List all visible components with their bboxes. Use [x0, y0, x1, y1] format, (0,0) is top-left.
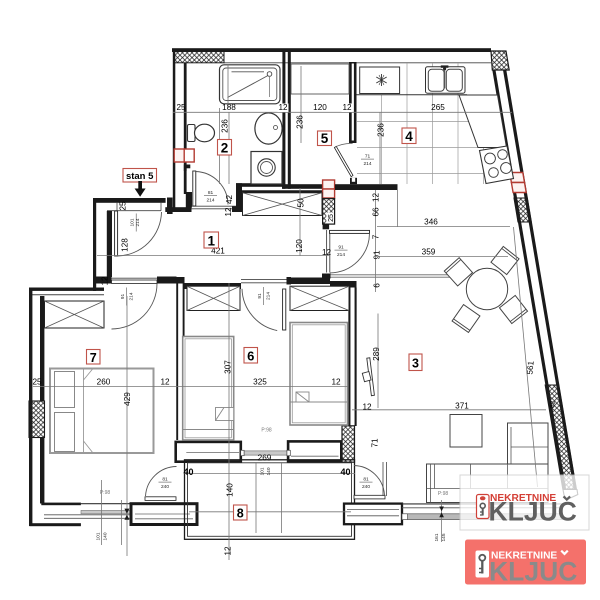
svg-text:12: 12	[342, 103, 352, 112]
svg-text:71: 71	[371, 438, 380, 448]
svg-text:5: 5	[321, 131, 329, 146]
svg-text:P:98: P:98	[261, 428, 272, 434]
svg-text:371: 371	[455, 402, 469, 411]
svg-text:429: 429	[123, 392, 132, 406]
svg-text:236: 236	[221, 119, 230, 133]
svg-text:8: 8	[237, 507, 244, 521]
svg-text:4: 4	[405, 129, 413, 144]
svg-text:50: 50	[297, 198, 306, 208]
svg-text:214: 214	[135, 218, 141, 226]
svg-text:71: 71	[365, 154, 371, 160]
svg-text:12: 12	[160, 378, 170, 387]
svg-text:91: 91	[257, 293, 263, 299]
svg-text:214: 214	[337, 252, 345, 258]
svg-text:214: 214	[206, 198, 214, 204]
svg-text:91: 91	[120, 294, 126, 300]
svg-text:128: 128	[121, 238, 130, 252]
svg-text:42: 42	[225, 195, 234, 205]
svg-text:P:98: P:98	[100, 490, 111, 496]
svg-text:25: 25	[176, 103, 186, 112]
svg-text:stan 5: stan 5	[126, 171, 154, 182]
svg-text:12: 12	[372, 193, 381, 203]
svg-text:561: 561	[525, 360, 535, 375]
svg-text:81: 81	[208, 190, 214, 196]
svg-text:145: 145	[441, 533, 447, 541]
svg-text:236: 236	[296, 115, 305, 129]
svg-text:359: 359	[422, 248, 436, 257]
svg-text:6: 6	[247, 349, 254, 364]
svg-text:101: 101	[260, 467, 266, 475]
svg-text:265: 265	[431, 103, 445, 112]
svg-text:40: 40	[340, 467, 350, 477]
svg-text:12: 12	[331, 378, 341, 387]
svg-text:12: 12	[224, 546, 233, 556]
svg-text:12: 12	[224, 207, 233, 217]
svg-text:91: 91	[373, 250, 382, 260]
svg-text:40: 40	[183, 467, 193, 477]
svg-text:1: 1	[207, 234, 215, 249]
svg-text:66: 66	[372, 207, 381, 217]
svg-text:188: 188	[222, 103, 236, 112]
svg-text:81: 81	[363, 477, 369, 483]
svg-text:P:98: P:98	[438, 491, 449, 497]
svg-text:25: 25	[32, 378, 42, 387]
svg-text:236: 236	[377, 123, 386, 137]
svg-text:346: 346	[424, 218, 438, 227]
svg-text:2: 2	[221, 141, 229, 156]
svg-text:214: 214	[129, 292, 135, 300]
svg-text:91: 91	[338, 245, 344, 251]
svg-text:140: 140	[266, 467, 272, 475]
svg-text:325: 325	[253, 378, 267, 387]
svg-text:101: 101	[130, 218, 136, 226]
svg-text:12: 12	[362, 403, 372, 412]
svg-text:307: 307	[224, 360, 233, 374]
svg-text:81: 81	[162, 477, 168, 483]
svg-text:KLJUC: KLJUC	[489, 497, 577, 527]
svg-text:120: 120	[313, 103, 327, 112]
svg-text:12: 12	[278, 103, 288, 112]
svg-text:140: 140	[103, 532, 109, 540]
svg-text:7: 7	[90, 351, 97, 365]
svg-text:214: 214	[363, 161, 371, 167]
svg-text:25: 25	[328, 214, 335, 222]
svg-text:6: 6	[373, 283, 382, 288]
svg-text:214: 214	[266, 292, 272, 300]
svg-text:12: 12	[322, 248, 332, 257]
svg-text:25: 25	[119, 201, 128, 211]
svg-text:289: 289	[372, 347, 381, 361]
svg-text:120: 120	[295, 239, 304, 253]
svg-text:140: 140	[226, 483, 235, 497]
svg-text:7: 7	[372, 234, 381, 239]
svg-text:260: 260	[97, 378, 111, 387]
svg-text:240: 240	[161, 484, 169, 490]
svg-text:101: 101	[96, 532, 102, 540]
svg-text:KLJUC: KLJUC	[489, 556, 577, 586]
svg-text:240: 240	[362, 484, 370, 490]
svg-text:3: 3	[412, 357, 419, 371]
svg-text:82: 82	[549, 400, 557, 408]
svg-text:269: 269	[258, 454, 272, 463]
svg-text:12: 12	[101, 276, 110, 286]
svg-text:161: 161	[434, 533, 440, 541]
